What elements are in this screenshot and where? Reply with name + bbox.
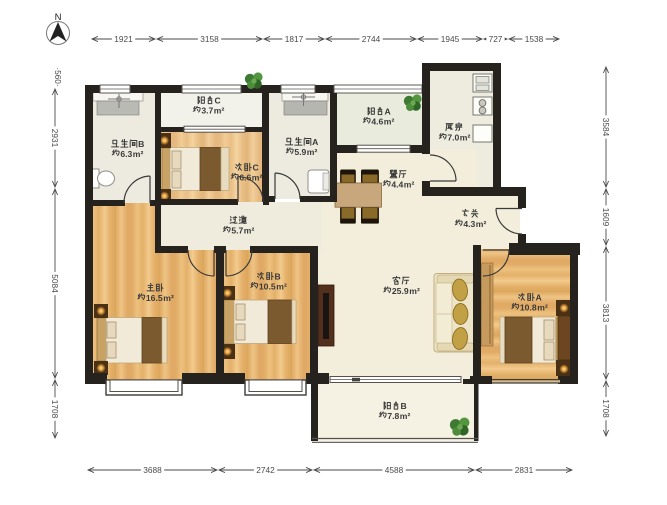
svg-text:7.0: 7.0 — [447, 133, 459, 143]
svg-text:1708: 1708 — [50, 400, 60, 419]
svg-text:1708: 1708 — [601, 399, 611, 418]
svg-text:m²: m² — [404, 180, 415, 190]
svg-text:2744: 2744 — [362, 34, 381, 44]
svg-text:C: C — [253, 162, 259, 172]
svg-text:m²: m² — [276, 282, 287, 292]
svg-text:6.3: 6.3 — [120, 149, 132, 159]
svg-text:C: C — [215, 95, 221, 105]
svg-text:3.7: 3.7 — [201, 106, 213, 116]
svg-text:·560·: ·560· — [53, 67, 63, 86]
svg-text:m²: m² — [460, 133, 471, 143]
svg-text:m²: m² — [133, 149, 144, 159]
svg-text:A: A — [312, 137, 318, 147]
svg-text:m²: m² — [252, 173, 263, 183]
svg-text:1921: 1921 — [114, 34, 133, 44]
svg-text:3158: 3158 — [200, 34, 219, 44]
svg-text:5.9: 5.9 — [294, 147, 306, 157]
svg-text:A: A — [385, 106, 391, 116]
svg-text:m²: m² — [476, 219, 487, 229]
svg-text:m²: m² — [537, 303, 548, 313]
svg-text:m²: m² — [244, 226, 255, 236]
svg-text:4.6: 4.6 — [371, 117, 383, 127]
svg-text:5.7: 5.7 — [231, 226, 243, 236]
svg-text:2742: 2742 — [256, 465, 275, 475]
svg-text:10.5: 10.5 — [259, 282, 276, 292]
svg-text:B: B — [275, 271, 281, 281]
svg-text:m²: m² — [307, 147, 318, 157]
svg-text:B: B — [138, 139, 144, 149]
svg-text:m²: m² — [409, 286, 420, 296]
svg-text:3813: 3813 — [601, 304, 611, 323]
svg-text:m²: m² — [163, 293, 174, 303]
svg-text:7.8: 7.8 — [387, 411, 399, 421]
svg-text:25.9: 25.9 — [392, 286, 409, 296]
svg-text:2931: 2931 — [50, 129, 60, 148]
svg-text:10.8: 10.8 — [520, 303, 537, 313]
svg-text:1538: 1538 — [525, 34, 544, 44]
svg-text:m²: m² — [214, 106, 225, 116]
svg-text:A: A — [536, 292, 542, 302]
svg-text:4.4: 4.4 — [391, 180, 403, 190]
svg-text:4588: 4588 — [385, 465, 404, 475]
svg-text:5084: 5084 — [50, 274, 60, 293]
svg-text:3688: 3688 — [143, 465, 162, 475]
svg-text:4.3: 4.3 — [463, 219, 475, 229]
svg-text:3584: 3584 — [601, 118, 611, 137]
svg-text:727: 727 — [489, 34, 503, 44]
svg-text:1609: 1609 — [601, 208, 611, 227]
svg-text:1817: 1817 — [285, 34, 304, 44]
svg-text:m²: m² — [384, 117, 395, 127]
svg-text:16.5: 16.5 — [146, 293, 163, 303]
svg-text:N: N — [55, 12, 62, 23]
svg-text:2831: 2831 — [515, 465, 534, 475]
svg-text:1945: 1945 — [441, 34, 460, 44]
svg-text:6.6: 6.6 — [239, 173, 251, 183]
svg-text:B: B — [401, 401, 407, 411]
svg-text:m²: m² — [400, 411, 411, 421]
